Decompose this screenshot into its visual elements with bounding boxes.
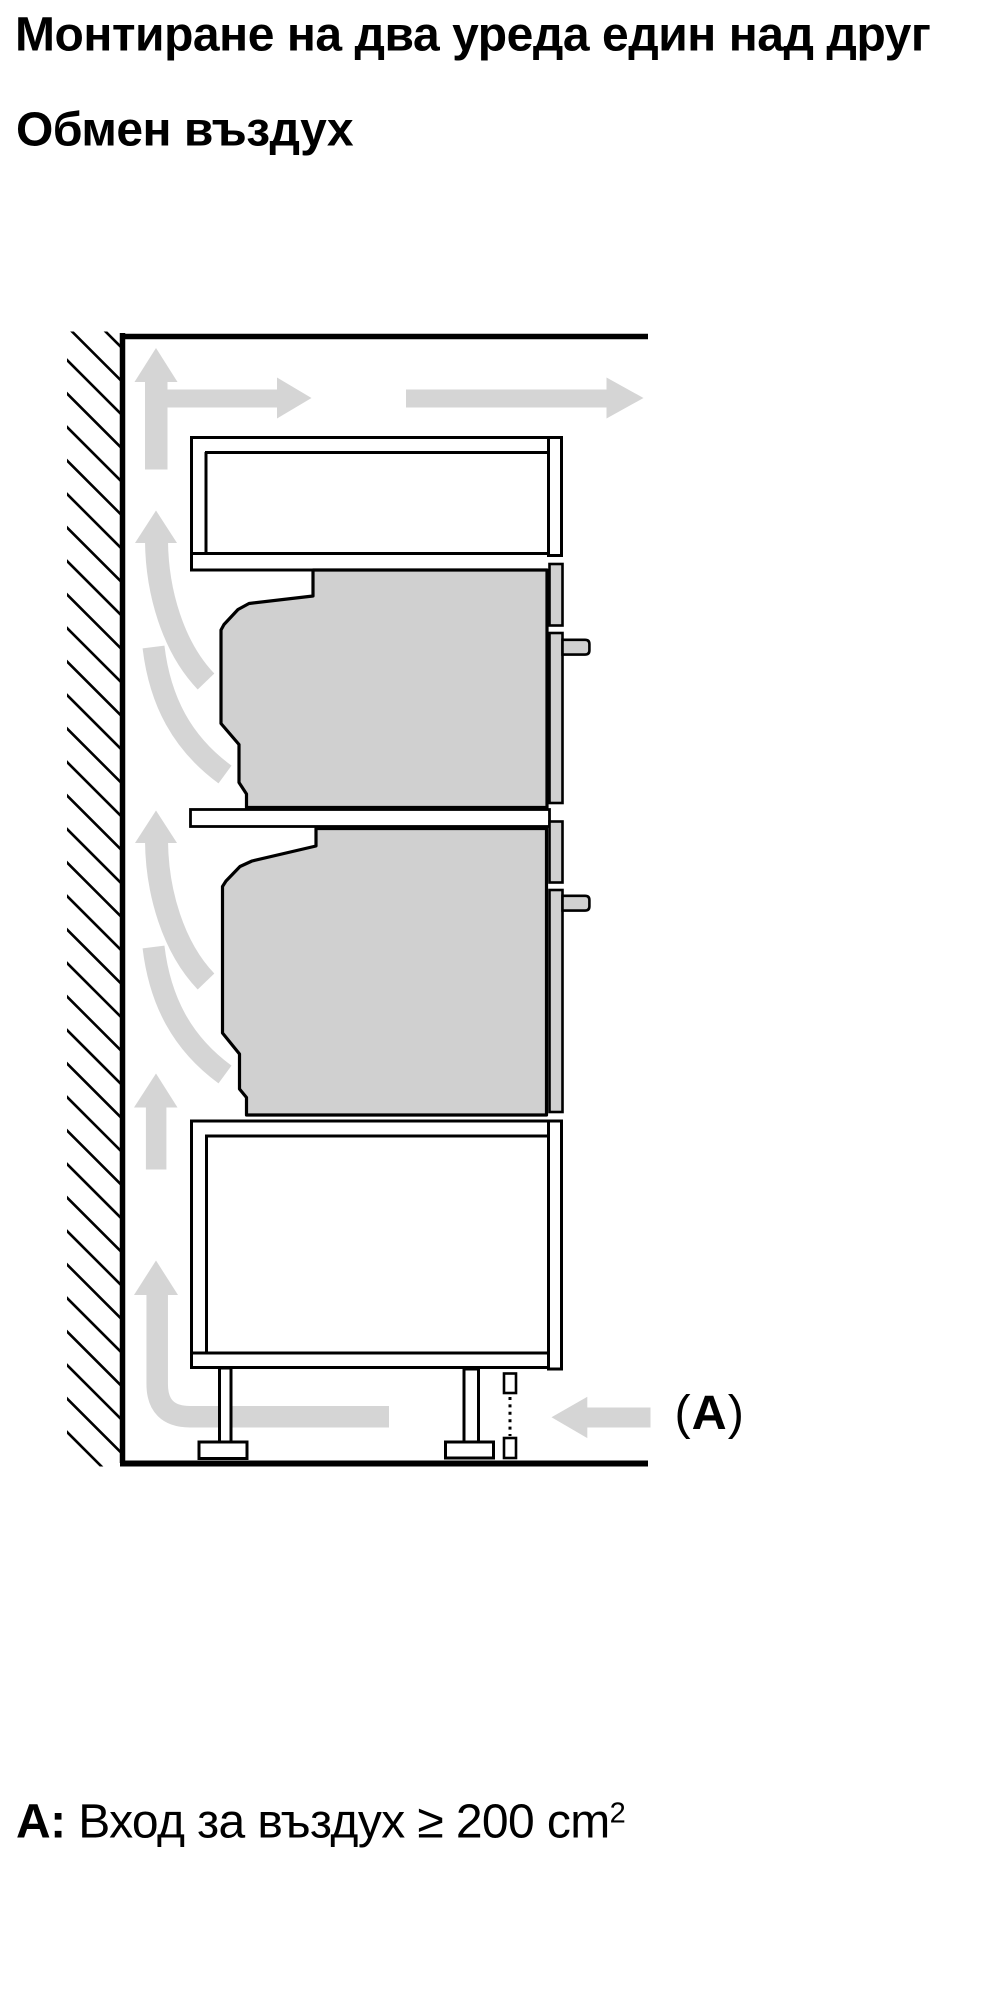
svg-text:Монтиране на два уреда един на: Монтиране на два уреда един над друг <box>15 9 930 62</box>
svg-text:A: Вход за въздух ≥ 200 cm2: A: Вход за въздух ≥ 200 cm2 <box>16 1796 625 1849</box>
svg-text:Обмен въздух: Обмен въздух <box>16 104 354 157</box>
svg-text:(A): (A) <box>675 1386 745 1440</box>
